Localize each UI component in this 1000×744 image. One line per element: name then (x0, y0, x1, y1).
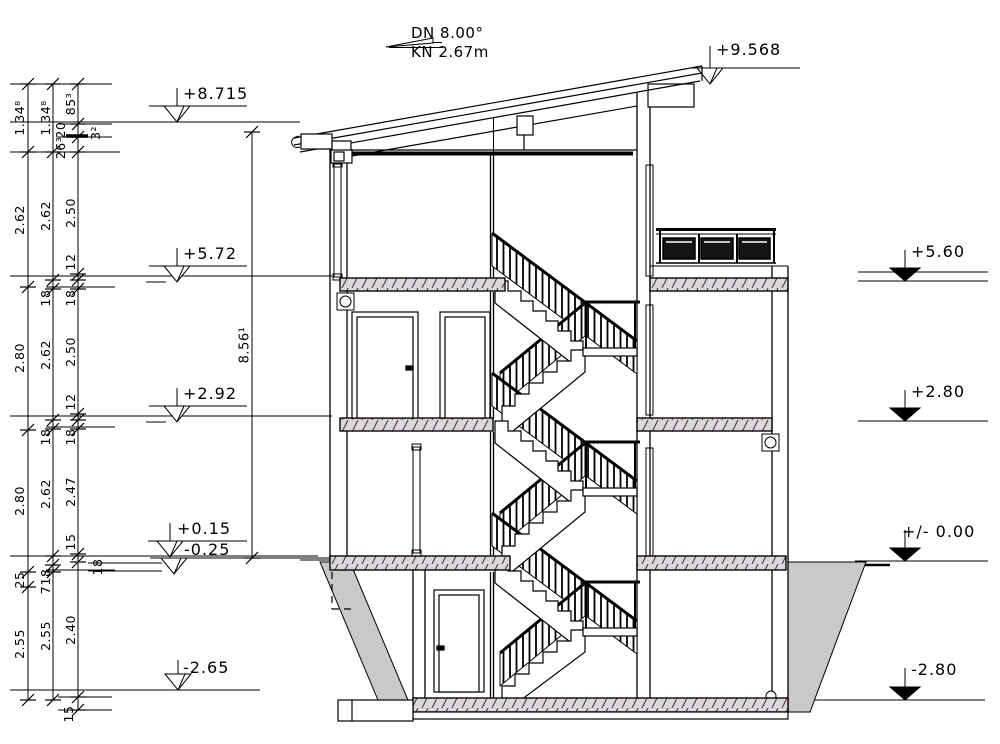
dim-inner-7: 12 (65, 394, 78, 411)
level-left-basement: -2.65 (183, 660, 229, 676)
dim-mid-2: 18 (40, 290, 53, 307)
dim-outer-3: 2.80 (14, 486, 27, 516)
dim-inner-0: 85³ (65, 93, 78, 115)
level-left-eave: +8.715 (183, 86, 248, 102)
section-drawing (0, 0, 1000, 744)
level-left-floor2: +2.92 (183, 386, 237, 402)
dim-inner-12: 15 (63, 706, 76, 723)
level-left-ground-ff: +0.15 (177, 521, 231, 537)
door-basement (434, 590, 484, 692)
roof (292, 66, 702, 234)
dim-mid-5: 2.62 (40, 479, 53, 509)
dim-inner-9: 2.47 (65, 477, 78, 507)
level-right-floor2: +2.80 (911, 384, 965, 400)
slab-basement (338, 698, 788, 721)
level-right-ridge: +9.568 (716, 42, 781, 58)
dim-mid-4: 18 (40, 429, 53, 446)
dim-inner-10: 15 (65, 534, 78, 551)
eave-detail-label: 3² (90, 126, 103, 140)
ground-slab-note: 18 (92, 559, 105, 576)
roof-eave-label: KN 2.67m (411, 45, 489, 60)
dimension-chain-lines (10, 84, 332, 710)
dim-inner-3: 2.50 (65, 198, 78, 228)
level-right-ground: +/- 0.00 (902, 524, 975, 540)
dim-outer-0: 1.34⁸ (14, 100, 27, 135)
dim-inner-6: 2.50 (65, 337, 78, 367)
door-level3-right (440, 312, 490, 418)
dim-inner-8: 18 (65, 429, 78, 446)
dim-mid-7: 7 (40, 586, 53, 594)
dim-outer-4: 25 (14, 572, 27, 589)
dim-mid-1: 2.62 (40, 201, 53, 231)
level-right-basement: -2.80 (911, 662, 957, 678)
dim-mid-3: 2.62 (40, 340, 53, 370)
dim-inner-5: 18 (65, 290, 78, 307)
dim-outer-5: 2.55 (14, 629, 27, 659)
dim-inner-11: 2.40 (65, 615, 78, 645)
roof-pitch-label: DN 8.00° (411, 26, 483, 41)
level-left-floor3: +5.72 (183, 246, 237, 262)
dim-mid-8: 2.55 (40, 621, 53, 651)
level-right-terrace: +5.60 (911, 244, 965, 260)
dim-outer-1: 2.62 (14, 205, 27, 235)
dim-mid-0: 1.34⁸ (40, 100, 53, 135)
stair-total-height-label: 8.56¹ (239, 327, 252, 364)
door-level3-left (352, 312, 418, 418)
dim-mid-6: 18 (40, 569, 53, 586)
level-left-ground-raw: -0.25 (184, 542, 230, 558)
dim-inner-4: 12 (65, 254, 78, 271)
architectural-section-canvas: DN 8.00° KN 2.67m +9.568 +5.60 +2.80 +/-… (0, 0, 1000, 744)
dim-outer-2: 2.80 (14, 343, 27, 373)
dim-inner-2: 26³ (55, 137, 68, 159)
staircase (492, 233, 640, 712)
terrace-railing (650, 229, 788, 266)
